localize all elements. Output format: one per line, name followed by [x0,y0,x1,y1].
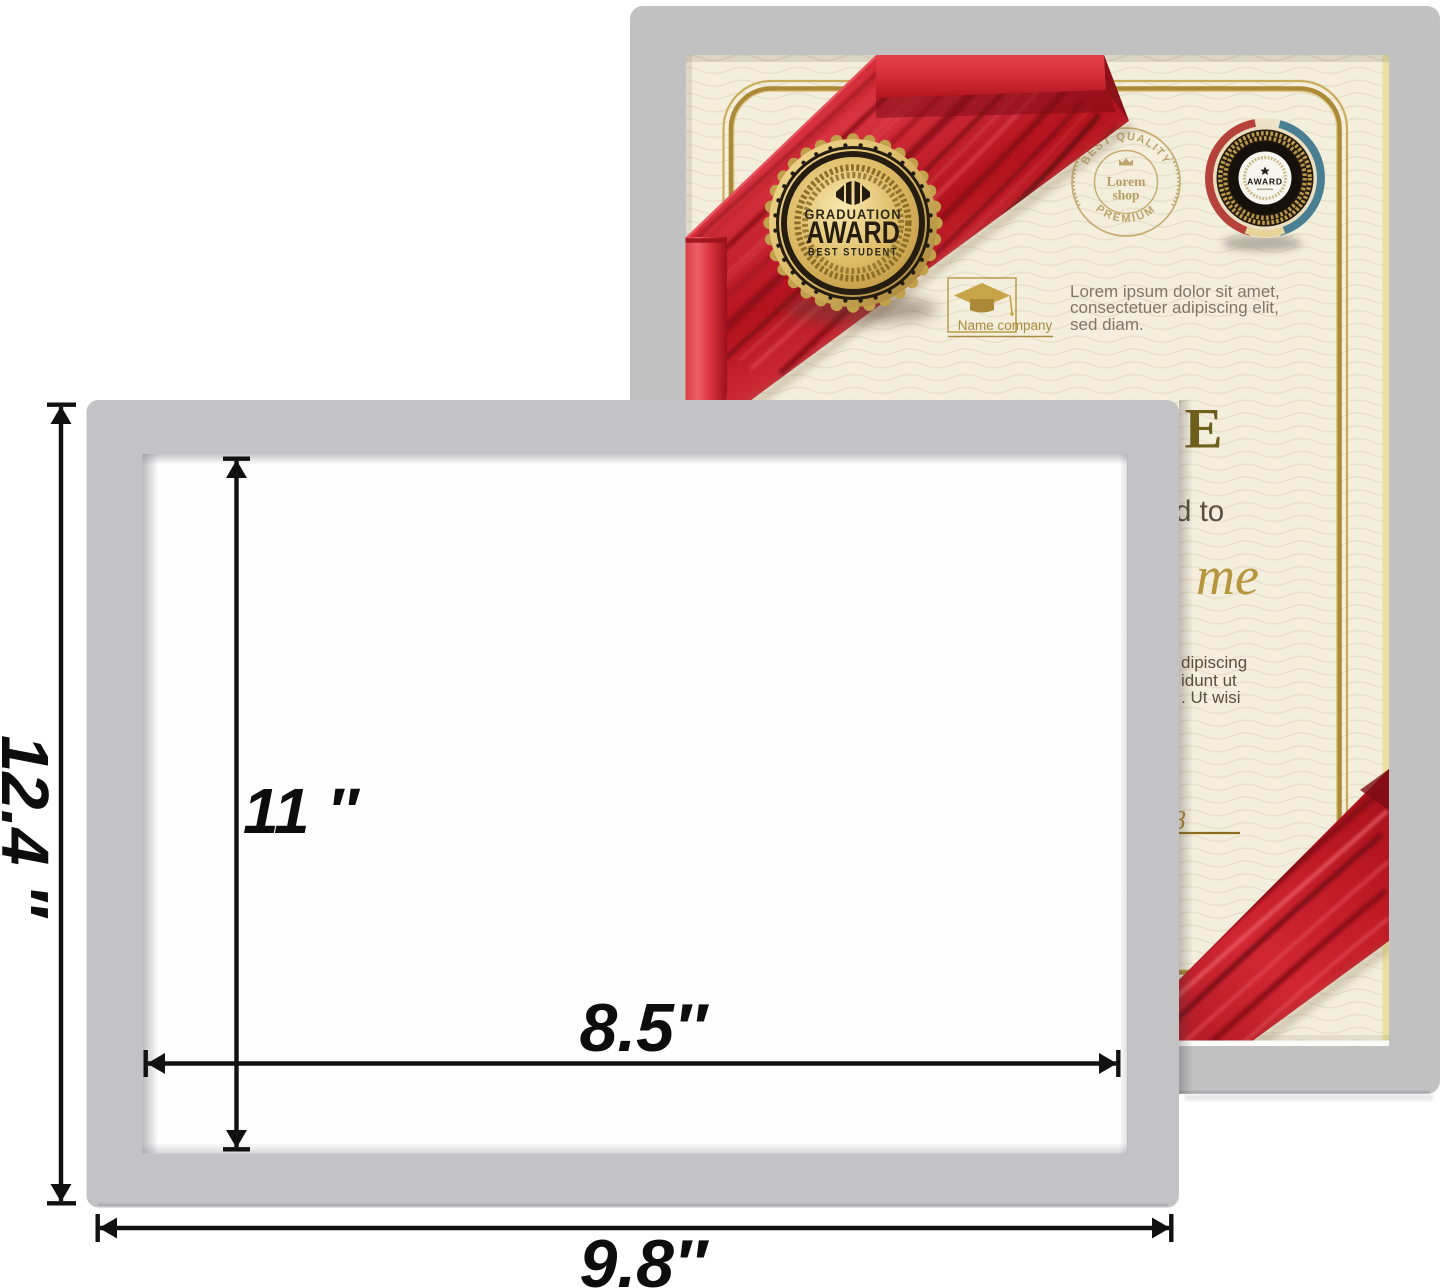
svg-text:me: me [1196,546,1259,606]
svg-text:11 ″: 11 ″ [243,775,360,847]
svg-text:12.4 ″: 12.4 ″ [0,735,62,919]
svg-text:Name company: Name company [958,318,1053,333]
svg-text:8.5″: 8.5″ [579,990,709,1066]
svg-text:BEST STUDENT: BEST STUDENT [808,247,898,259]
svg-text:AWARD: AWARD [806,215,900,250]
svg-text:AWARD: AWARD [1247,177,1283,187]
svg-text:shop: shop [1112,188,1139,203]
svg-text:9.8″: 9.8″ [579,1226,709,1288]
svg-text:sed diam.: sed diam. [1070,315,1144,334]
